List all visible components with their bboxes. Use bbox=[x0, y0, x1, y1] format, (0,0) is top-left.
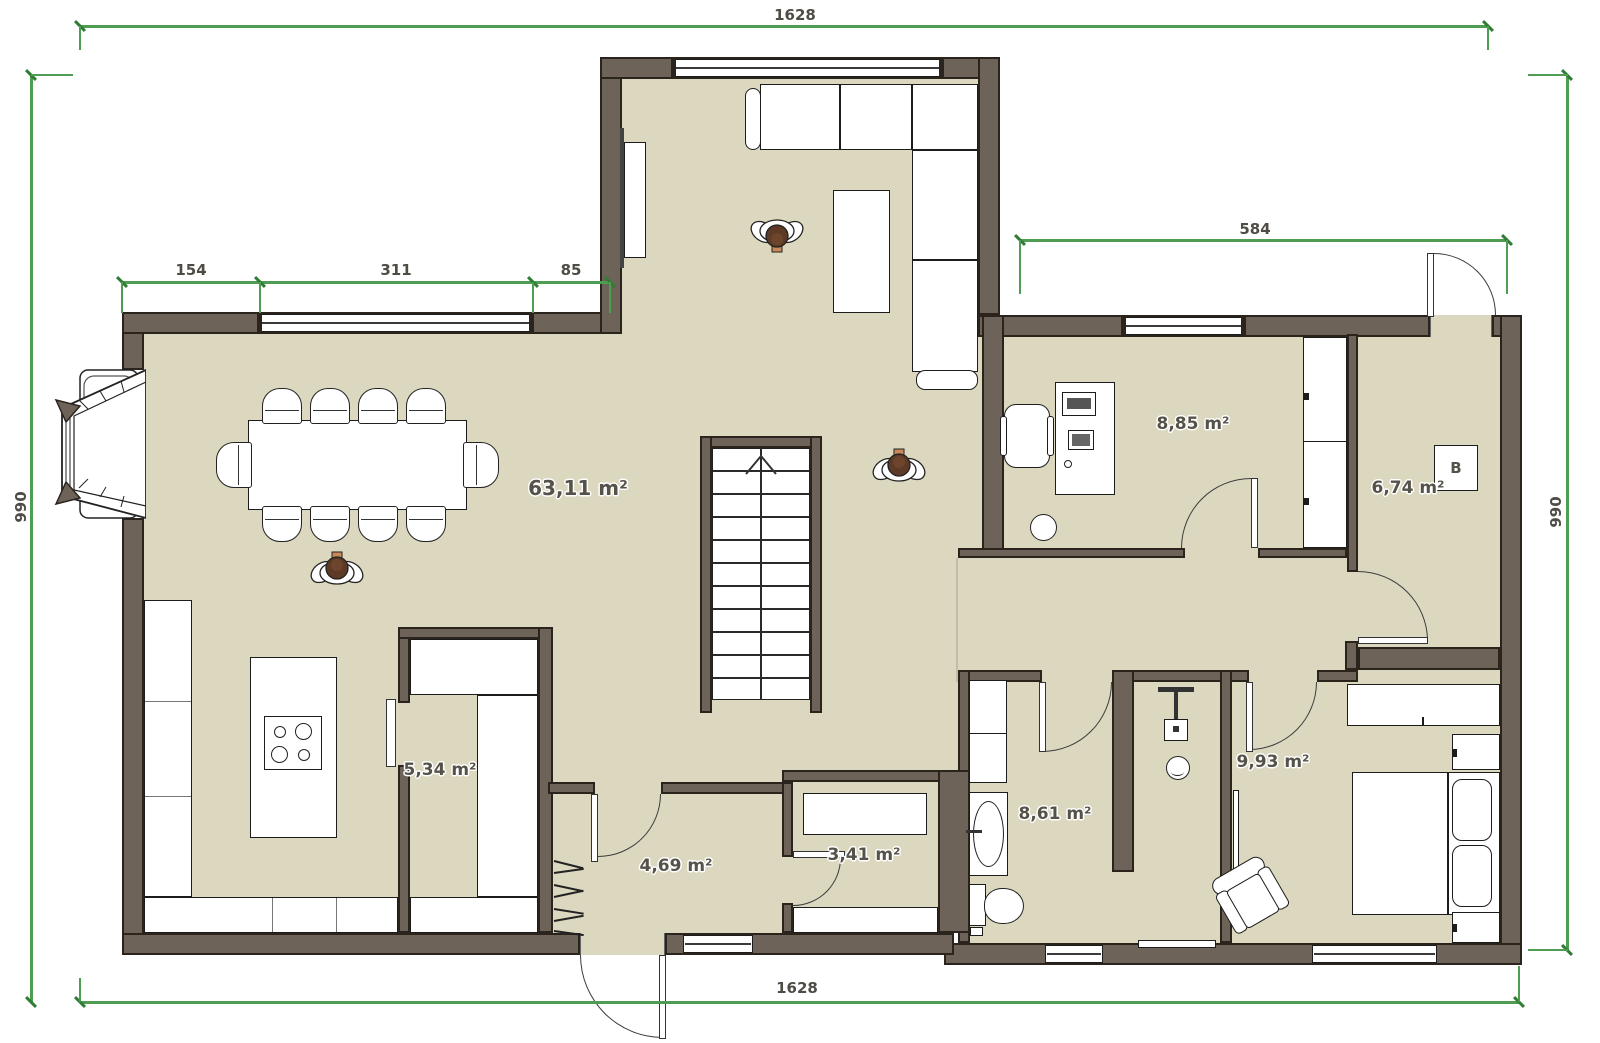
wall-closet-top bbox=[782, 770, 958, 782]
shower-drain-icon bbox=[1166, 756, 1190, 780]
shower-head-icon bbox=[1164, 719, 1188, 741]
dim-seg1-label: 154 bbox=[175, 261, 206, 279]
wall-technical-left bbox=[1347, 334, 1358, 572]
wall-stairs-top bbox=[700, 436, 822, 448]
wall-stairs-right bbox=[810, 436, 822, 713]
dining-chair[interactable] bbox=[406, 506, 446, 542]
room-label-office[interactable]: 8,85 m² bbox=[1156, 414, 1229, 434]
technical-door-icon[interactable] bbox=[1358, 637, 1428, 644]
plant-pot-icon[interactable] bbox=[1030, 514, 1057, 541]
wall-tower-left bbox=[600, 57, 622, 334]
office-door-icon[interactable] bbox=[1251, 478, 1258, 548]
window-office-icon bbox=[1122, 317, 1245, 335]
wall-stairs-left bbox=[700, 436, 712, 713]
coffee-table[interactable] bbox=[833, 190, 890, 313]
wall-bottom-left-w bbox=[122, 933, 580, 955]
pillow-icon bbox=[1452, 779, 1492, 841]
toilet-icon[interactable] bbox=[984, 888, 1024, 924]
bathroom-cabinet[interactable] bbox=[969, 680, 1007, 783]
pantry-shelf-top[interactable] bbox=[410, 639, 538, 695]
floor-transition-line bbox=[956, 558, 958, 682]
wall-hall-bottom-e bbox=[1317, 670, 1358, 682]
wall-hall-top-w bbox=[958, 548, 1185, 558]
toilet-flush-button bbox=[970, 927, 983, 936]
dining-chair[interactable] bbox=[406, 388, 446, 424]
bay-window-icon bbox=[50, 344, 146, 560]
dim-bottom-line bbox=[80, 1001, 1520, 1004]
office-wardrobe[interactable] bbox=[1303, 337, 1347, 548]
room-label-technical[interactable]: 6,74 m² bbox=[1371, 478, 1444, 498]
hall-door-icon[interactable] bbox=[591, 794, 598, 862]
office-chair-armrest bbox=[1000, 416, 1007, 456]
sofa-top-section[interactable] bbox=[760, 84, 978, 150]
pantry-sliding-door-icon[interactable] bbox=[386, 699, 396, 767]
closet-cabinet-bottom[interactable] bbox=[793, 907, 938, 933]
sofa-armrest-bottom[interactable] bbox=[916, 370, 978, 390]
dim-right-label: 990 bbox=[1547, 496, 1565, 527]
floor-hallway bbox=[958, 548, 1358, 682]
dining-chair[interactable] bbox=[358, 506, 398, 542]
wall-closet-left-b bbox=[782, 903, 793, 933]
back-entry-opening bbox=[1430, 315, 1492, 337]
dim-top-line bbox=[80, 25, 1488, 28]
dim-top-label: 1628 bbox=[774, 6, 816, 24]
dim-window-line bbox=[122, 281, 612, 284]
wall-entrance-top-e bbox=[661, 782, 790, 794]
dim-wing-label: 584 bbox=[1239, 220, 1270, 238]
dim-right-line bbox=[1566, 75, 1569, 950]
nightstand-north[interactable] bbox=[1452, 734, 1500, 770]
room-label-closet[interactable]: 3,41 m² bbox=[827, 845, 900, 865]
wall-hall-top-e bbox=[1258, 548, 1347, 558]
wall-closet-right bbox=[938, 770, 970, 933]
dining-chair[interactable] bbox=[463, 442, 499, 488]
room-label-bathroom[interactable]: 8,61 m² bbox=[1018, 804, 1091, 824]
wall-left-lower bbox=[122, 518, 144, 955]
dim-left-label: 990 bbox=[12, 491, 30, 522]
sofa-armrest-left[interactable] bbox=[745, 88, 761, 150]
dining-chair[interactable] bbox=[216, 442, 252, 488]
room-label-bedroom[interactable]: 9,93 m² bbox=[1236, 752, 1309, 772]
window-entrance-icon bbox=[683, 935, 753, 953]
pillow-icon bbox=[1452, 845, 1492, 907]
wall-technical-bottom bbox=[1358, 647, 1500, 670]
bedroom-door-icon[interactable] bbox=[1246, 682, 1253, 752]
wall-closet-left-a bbox=[782, 782, 793, 857]
dim-left-line bbox=[30, 75, 33, 1002]
window-bathroom-icon bbox=[1045, 945, 1103, 963]
kitchen-counter-left[interactable] bbox=[144, 600, 192, 897]
sofa-right-section[interactable] bbox=[912, 150, 978, 372]
office-chair[interactable] bbox=[1004, 404, 1050, 468]
wall-technical-stub bbox=[1345, 641, 1358, 670]
window-bedroom-icon bbox=[1312, 945, 1437, 963]
pantry-shelf-right[interactable] bbox=[477, 695, 538, 897]
wall-pantry-left-b bbox=[398, 765, 410, 933]
tv-icon[interactable] bbox=[624, 142, 646, 258]
shower-glass-door[interactable] bbox=[1138, 940, 1216, 948]
dining-chair[interactable] bbox=[310, 388, 350, 424]
room-label-living[interactable]: 63,11 m² bbox=[528, 476, 628, 500]
dim-seg3-label: 85 bbox=[561, 261, 582, 279]
dining-table[interactable] bbox=[248, 420, 467, 510]
pantry-shelf-bottom[interactable] bbox=[410, 897, 538, 933]
closet-wardrobe-top[interactable] bbox=[803, 793, 927, 835]
back-entry-arc bbox=[1434, 253, 1496, 315]
staircase-divider bbox=[760, 448, 762, 700]
front-door-opening bbox=[580, 933, 665, 955]
wall-shower-partition bbox=[1112, 670, 1134, 872]
bedroom-wardrobe[interactable] bbox=[1347, 684, 1500, 726]
front-door-icon[interactable] bbox=[659, 955, 666, 1039]
front-door-arc bbox=[580, 955, 663, 1038]
dining-chair[interactable] bbox=[358, 388, 398, 424]
person-icon[interactable] bbox=[309, 546, 365, 590]
wall-right bbox=[1500, 315, 1522, 965]
monitor-icon[interactable] bbox=[1062, 392, 1096, 416]
dim-bottom-label: 1628 bbox=[776, 979, 818, 997]
room-label-entrance[interactable]: 4,69 m² bbox=[639, 856, 712, 876]
boiler-label: B bbox=[1450, 459, 1461, 477]
office-chair-armrest bbox=[1047, 416, 1054, 456]
dim-wing-line bbox=[1020, 239, 1507, 242]
dining-chair[interactable] bbox=[310, 506, 350, 542]
nightstand-south[interactable] bbox=[1452, 912, 1500, 943]
wall-pantry-right bbox=[538, 627, 553, 933]
bathroom-door-icon[interactable] bbox=[1039, 682, 1046, 752]
person-icon[interactable] bbox=[871, 443, 927, 487]
sink-icon bbox=[973, 801, 1004, 867]
kitchen-counter-bottom[interactable] bbox=[144, 897, 398, 933]
wall-pantry-top bbox=[398, 627, 548, 639]
window-top-left-icon bbox=[258, 314, 533, 332]
room-label-pantry[interactable]: 5,34 m² bbox=[403, 760, 476, 780]
wall-entrance-top-w bbox=[548, 782, 595, 794]
shower-stem-icon bbox=[1174, 690, 1178, 720]
dim-seg2-label: 311 bbox=[380, 261, 411, 279]
stove-icon[interactable] bbox=[264, 716, 322, 770]
mouse-icon bbox=[1064, 460, 1072, 468]
floor-plan: B bbox=[0, 0, 1600, 1043]
dining-chair[interactable] bbox=[262, 388, 302, 424]
back-entry-door-icon[interactable] bbox=[1427, 253, 1434, 317]
stairs-up-arrow-icon bbox=[740, 452, 782, 478]
window-living-top-icon bbox=[672, 59, 943, 77]
person-icon[interactable] bbox=[749, 214, 805, 258]
wall-tower-right bbox=[978, 57, 1000, 315]
dining-chair[interactable] bbox=[262, 506, 302, 542]
computer-icon[interactable] bbox=[1068, 430, 1094, 450]
faucet-icon bbox=[966, 830, 982, 833]
